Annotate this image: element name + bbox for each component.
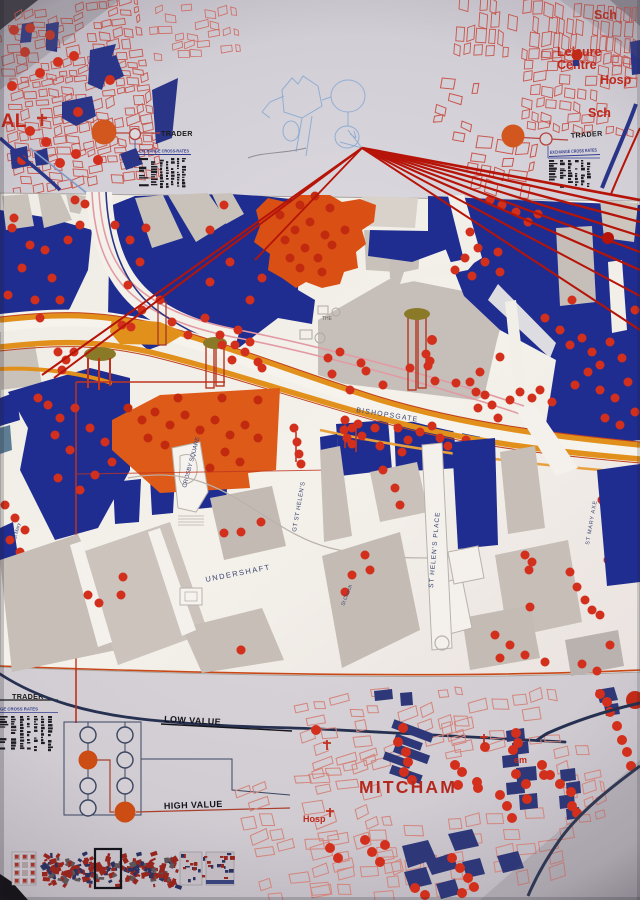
svg-text:THE: THE (322, 316, 333, 322)
svg-text:Hosp: Hosp (600, 73, 632, 87)
svg-text:EXCHANGE CROSS-RATES: EXCHANGE CROSS-RATES (139, 149, 189, 154)
svg-text:em: em (514, 755, 527, 765)
svg-text:Sch: Sch (588, 106, 611, 120)
svg-text:Hosp: Hosp (303, 814, 326, 824)
svg-text:GE CROSS RATES: GE CROSS RATES (0, 707, 38, 712)
svg-text:TRADER: TRADER (161, 129, 193, 138)
svg-text:MITCHAM: MITCHAM (359, 777, 457, 797)
svg-text:AL: AL (1, 111, 27, 132)
svg-text:HIGH VALUE: HIGH VALUE (164, 799, 223, 811)
